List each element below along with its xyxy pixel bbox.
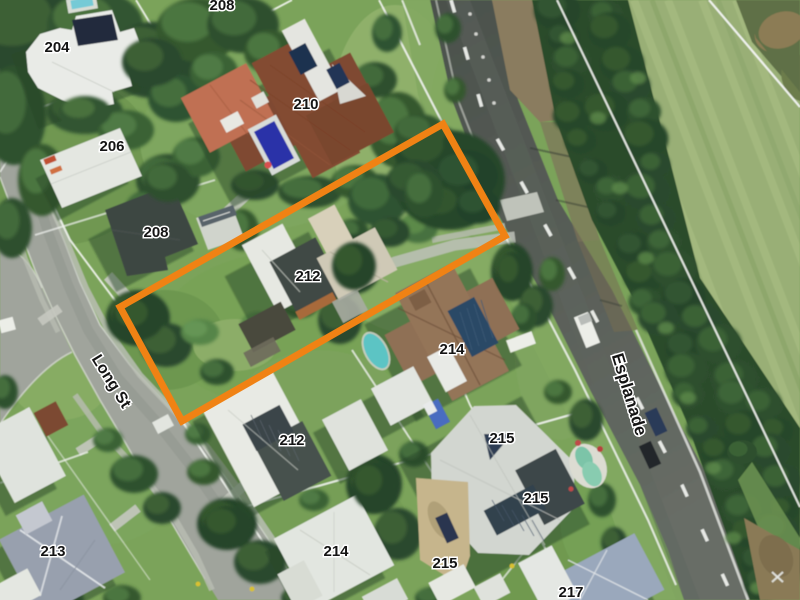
svg-text:213: 213 [40, 543, 65, 560]
svg-text:214: 214 [323, 543, 349, 560]
svg-text:208: 208 [209, 0, 234, 14]
svg-text:206: 206 [99, 138, 124, 155]
svg-text:217: 217 [558, 584, 583, 600]
svg-text:212: 212 [279, 432, 304, 449]
svg-text:215: 215 [523, 490, 548, 507]
svg-text:208: 208 [143, 224, 168, 241]
svg-text:215: 215 [489, 430, 514, 447]
svg-text:212: 212 [295, 268, 320, 285]
svg-text:215: 215 [432, 555, 457, 572]
svg-text:210: 210 [293, 96, 318, 113]
svg-text:214: 214 [439, 341, 465, 358]
svg-text:204: 204 [44, 39, 70, 56]
